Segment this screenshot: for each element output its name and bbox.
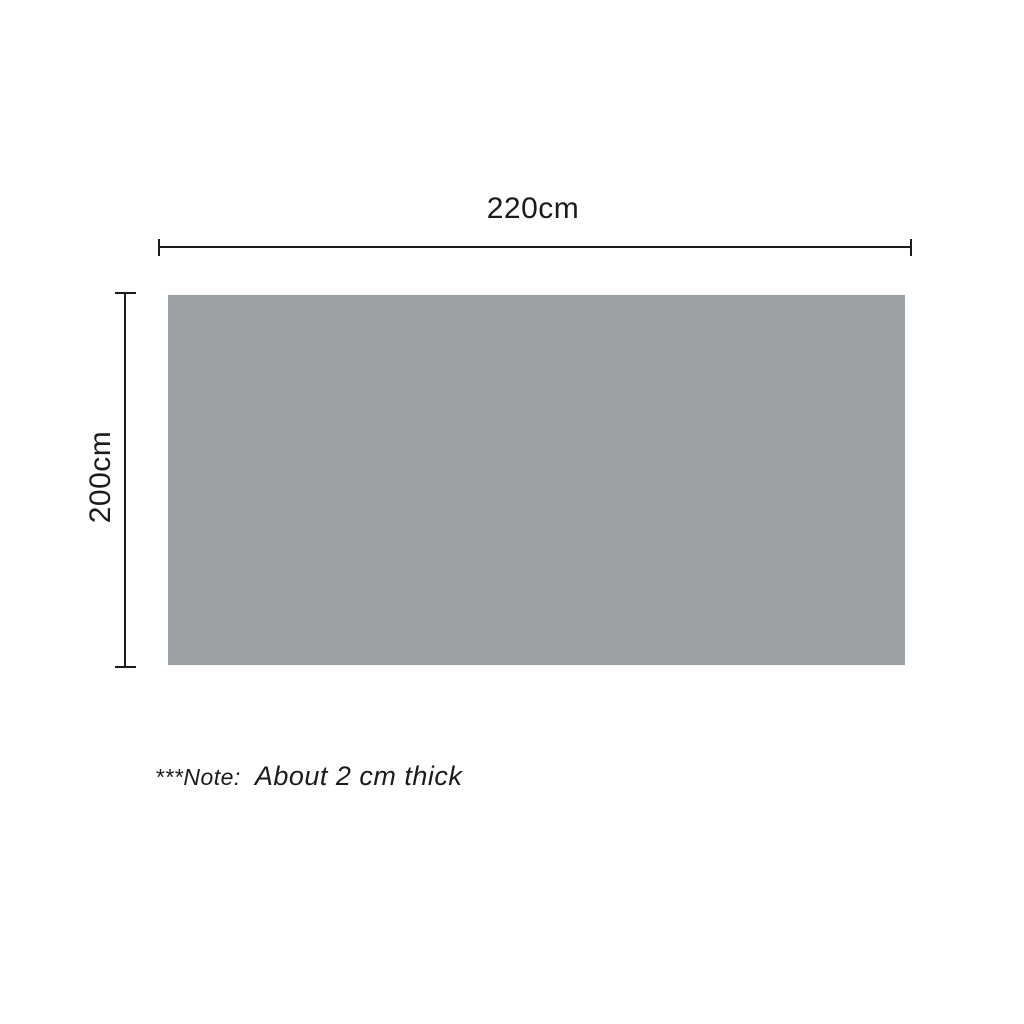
height-dimension-rule [124,294,126,666]
width-dimension-label: 220cm [487,192,580,226]
note-text: About 2 cm thick [255,761,463,792]
product-panel [168,295,905,665]
height-dimension-line [115,292,136,668]
width-dimension-line [158,239,912,256]
thickness-note: ***Note: About 2 cm thick [155,761,462,792]
product-dimension-diagram: 220cm 200cm ***Note: About 2 cm thick [0,0,1024,1024]
width-dimension-rule [160,246,910,248]
note-prefix: ***Note: [155,764,241,791]
height-dimension-label: 200cm [84,431,118,524]
